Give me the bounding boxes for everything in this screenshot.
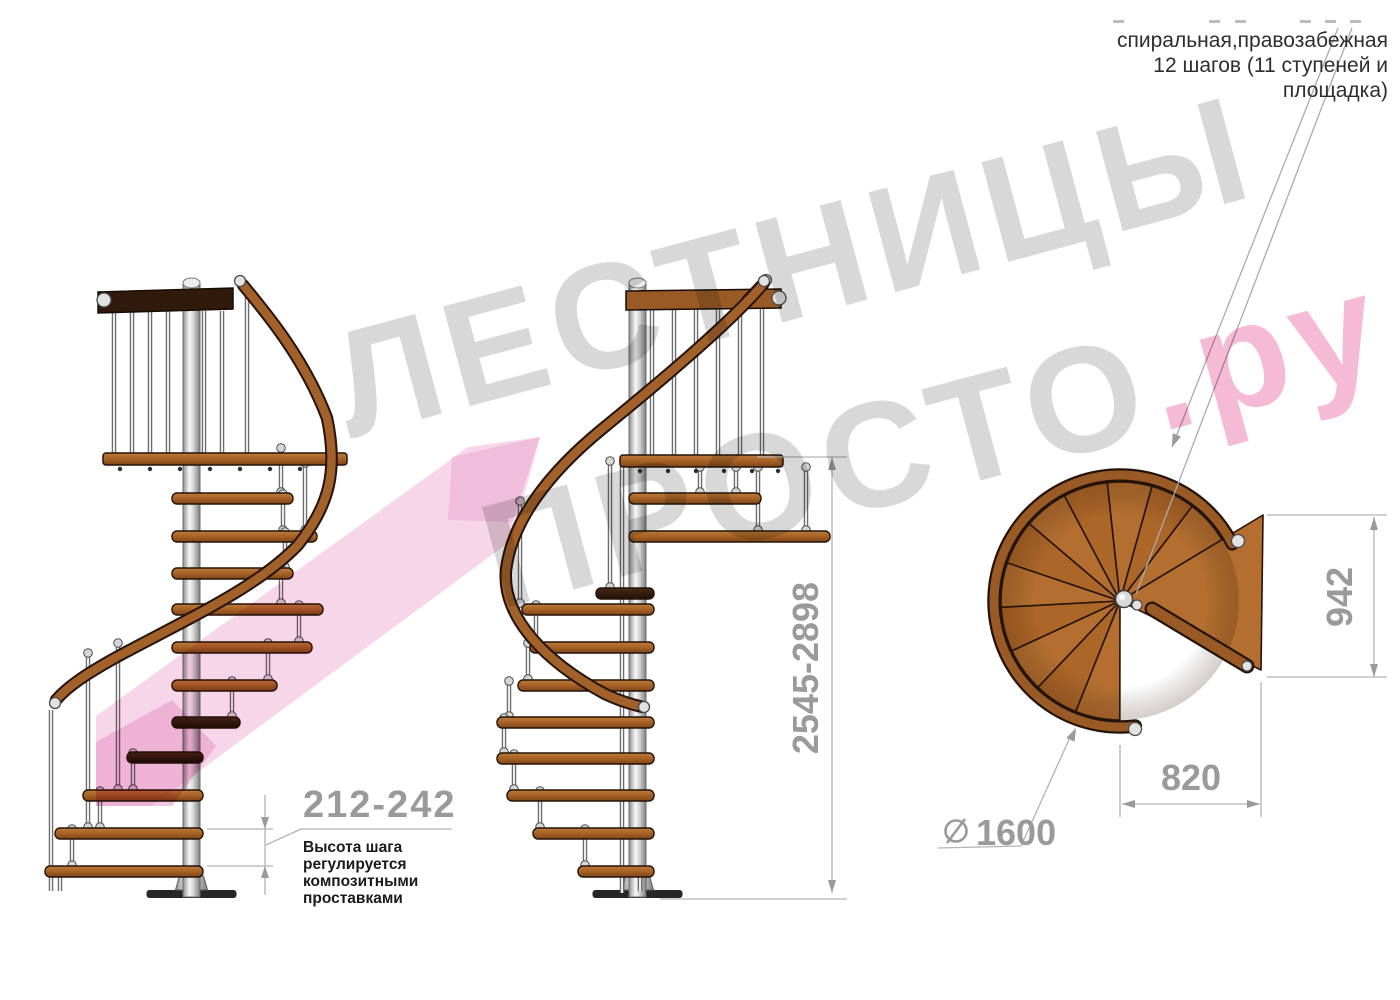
drawing-sheet: 212-242 Высота шага регулируется компози…: [0, 0, 1400, 1000]
plan-leader-lines: [1136, 28, 1352, 594]
step: [83, 790, 203, 801]
side-view-front: [45, 276, 347, 899]
step: [172, 493, 293, 504]
step: [55, 828, 203, 839]
landing-platform: [103, 453, 347, 465]
step: [533, 828, 654, 839]
step: [497, 753, 654, 764]
step: [578, 866, 654, 877]
title-line1: спиральная,правозабежная: [1117, 28, 1388, 53]
step: [172, 680, 277, 691]
bolt: [638, 469, 642, 473]
step: [522, 604, 654, 615]
metal-cap: [772, 291, 786, 305]
pole-top: [629, 278, 646, 288]
diameter-value: 1600: [976, 812, 1056, 853]
dimension-step-height: 212-242 Высота шага регулируется компози…: [207, 784, 456, 907]
step: [507, 790, 654, 801]
bolt: [148, 467, 152, 471]
dimension-plan-width: 942: [1267, 515, 1387, 677]
svg-text:композитными: композитными: [303, 873, 418, 890]
metal-cap: [759, 276, 770, 287]
plan-center-pole-highlight: [1119, 594, 1125, 600]
center-pole: [183, 282, 200, 897]
bolt: [208, 467, 212, 471]
joint-ball: [505, 677, 514, 686]
bolt: [238, 467, 242, 471]
plan-depth-value: 820: [1161, 757, 1221, 798]
joint-ball: [114, 639, 123, 648]
plan-width-value: 942: [1319, 567, 1360, 627]
bolt: [178, 467, 182, 471]
step-height-value: 212-242: [303, 784, 456, 826]
step: [497, 717, 654, 728]
metal-cap: [1129, 723, 1142, 736]
joint-ball: [516, 497, 525, 506]
step: [629, 493, 761, 504]
step: [45, 866, 203, 877]
metal-cap: [639, 702, 650, 713]
svg-text:регулируется: регулируется: [303, 856, 406, 873]
plan-leader-arrow: [1172, 433, 1181, 447]
joint-ball: [84, 649, 93, 658]
bolt: [118, 467, 122, 471]
staircase-drawing: 212-242 Высота шага регулируется компози…: [0, 0, 1400, 1000]
title-annotation: спиральная,правозабежная 12 шагов (11 ст…: [1117, 28, 1388, 103]
side-view-rotated: [497, 275, 830, 899]
step: [596, 588, 654, 599]
bolt: [298, 467, 302, 471]
total-height-value: 2545-2898: [785, 582, 826, 754]
metal-cap: [1232, 535, 1245, 548]
step: [629, 531, 830, 542]
dimension-total-height: 2545-2898: [660, 457, 847, 899]
top-rail: [98, 288, 233, 313]
metal-cap: [1132, 600, 1142, 610]
bolt: [776, 469, 780, 473]
svg-text:проставками: проставками: [303, 890, 403, 907]
joint-ball: [277, 444, 286, 453]
bolt: [694, 469, 698, 473]
step: [172, 717, 240, 728]
title-line2: 12 шагов (11 ступеней и: [1117, 53, 1388, 78]
step: [127, 752, 203, 763]
bolt: [666, 469, 670, 473]
metal-cap: [97, 293, 111, 307]
dimension-diameter: 1600: [938, 728, 1076, 853]
metal-cap: [1242, 661, 1252, 671]
joint-ball: [802, 463, 811, 472]
bolt: [722, 469, 726, 473]
bolt: [268, 467, 272, 471]
cropped-label-dashes: [1113, 20, 1361, 23]
diameter-icon: [946, 819, 967, 843]
svg-text:Высота шага: Высота шага: [303, 839, 403, 856]
title-line3: площадка): [1117, 78, 1388, 103]
joint-ball: [606, 457, 615, 466]
plan-view: [994, 475, 1263, 735]
step: [172, 642, 312, 653]
bolt: [750, 469, 754, 473]
pole-top: [183, 278, 200, 288]
metal-cap: [235, 276, 246, 287]
metal-cap: [50, 698, 61, 709]
